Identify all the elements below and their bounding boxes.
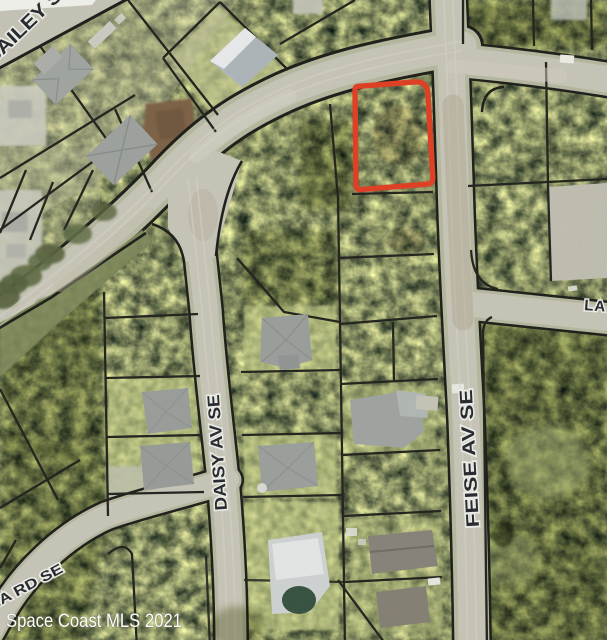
svg-text:Space Coast MLS 2021: Space Coast MLS 2021	[6, 610, 182, 632]
